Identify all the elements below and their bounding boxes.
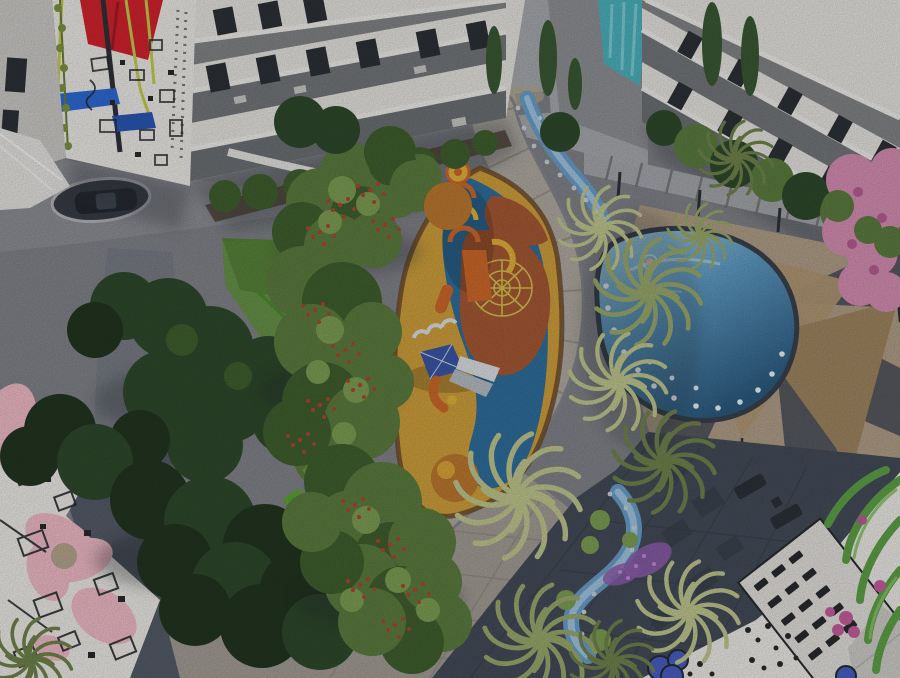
mural-tower <box>52 0 196 186</box>
tower-step <box>447 395 457 405</box>
courtyard-render <box>0 0 900 678</box>
left-wall-window-1 <box>5 57 27 92</box>
render-canvas <box>0 0 900 678</box>
orange-bush-highlight <box>437 461 455 479</box>
caterpillar-eye <box>454 168 462 176</box>
